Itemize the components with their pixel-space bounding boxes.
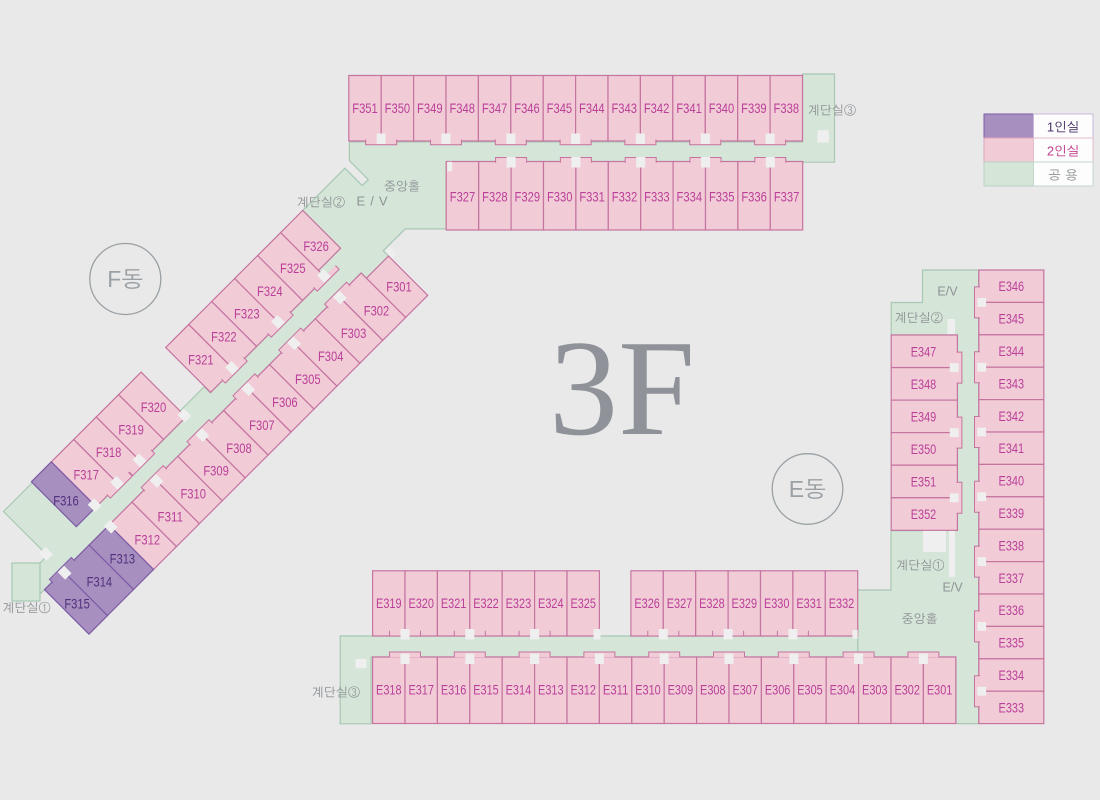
svg-text:E312: E312 xyxy=(570,682,596,698)
svg-text:E/V: E/V xyxy=(357,194,388,209)
svg-text:E306: E306 xyxy=(765,682,791,698)
svg-text:F345: F345 xyxy=(547,100,573,116)
svg-text:F316: F316 xyxy=(53,493,79,509)
svg-text:F330: F330 xyxy=(547,189,573,205)
svg-text:F337: F337 xyxy=(774,189,800,205)
svg-text:E320: E320 xyxy=(408,595,434,611)
svg-text:E352: E352 xyxy=(911,506,937,522)
svg-text:E344: E344 xyxy=(999,343,1025,359)
svg-text:F347: F347 xyxy=(482,100,508,116)
svg-text:F333: F333 xyxy=(644,189,670,205)
svg-text:F346: F346 xyxy=(514,100,540,116)
svg-text:F328: F328 xyxy=(482,189,508,205)
svg-text:E351: E351 xyxy=(911,474,937,490)
svg-text:E324: E324 xyxy=(538,595,564,611)
svg-text:F343: F343 xyxy=(611,100,637,116)
svg-text:F331: F331 xyxy=(579,189,605,205)
svg-text:E336: E336 xyxy=(999,602,1025,618)
svg-text:E345: E345 xyxy=(999,311,1025,327)
svg-text:E303: E303 xyxy=(862,682,888,698)
svg-text:F308: F308 xyxy=(226,440,252,456)
svg-text:E316: E316 xyxy=(441,682,467,698)
svg-text:E314: E314 xyxy=(506,682,532,698)
svg-text:E343: E343 xyxy=(999,375,1025,391)
svg-text:E317: E317 xyxy=(408,682,434,698)
svg-text:F332: F332 xyxy=(612,189,638,205)
svg-text:E315: E315 xyxy=(473,682,499,698)
svg-text:E330: E330 xyxy=(764,595,790,611)
svg-text:E319: E319 xyxy=(376,595,402,611)
svg-text:E347: E347 xyxy=(911,343,937,359)
svg-text:E338: E338 xyxy=(999,537,1025,553)
svg-text:E307: E307 xyxy=(732,682,758,698)
svg-text:E325: E325 xyxy=(570,595,596,611)
svg-text:E350: E350 xyxy=(911,441,937,457)
svg-text:E: E xyxy=(789,476,804,502)
svg-text:F351: F351 xyxy=(352,100,378,116)
svg-text:E301: E301 xyxy=(927,682,953,698)
svg-text:F310: F310 xyxy=(180,486,206,502)
svg-text:F312: F312 xyxy=(135,531,161,547)
svg-text:F305: F305 xyxy=(295,371,321,387)
svg-text:E341: E341 xyxy=(999,440,1025,456)
svg-text:E308: E308 xyxy=(700,682,726,698)
svg-text:F314: F314 xyxy=(87,573,113,589)
svg-text:E311: E311 xyxy=(603,682,629,698)
svg-text:E348: E348 xyxy=(911,376,937,392)
svg-text:E332: E332 xyxy=(829,595,855,611)
svg-text:F329: F329 xyxy=(515,189,541,205)
svg-text:F340: F340 xyxy=(709,100,735,116)
svg-text:E302: E302 xyxy=(894,682,920,698)
svg-text:F321: F321 xyxy=(188,352,214,368)
svg-text:F315: F315 xyxy=(64,596,90,612)
svg-text:E305: E305 xyxy=(797,682,823,698)
svg-text:F311: F311 xyxy=(158,509,184,525)
svg-text:F326: F326 xyxy=(303,238,329,254)
svg-text:E322: E322 xyxy=(473,595,499,611)
svg-text:E331: E331 xyxy=(796,595,822,611)
svg-text:E310: E310 xyxy=(635,682,661,698)
svg-text:E349: E349 xyxy=(911,408,937,424)
svg-text:F306: F306 xyxy=(272,394,298,410)
svg-text:E329: E329 xyxy=(732,595,758,611)
svg-text:E340: E340 xyxy=(999,473,1025,489)
svg-text:F307: F307 xyxy=(249,417,275,433)
svg-text:F324: F324 xyxy=(257,283,283,299)
svg-text:F336: F336 xyxy=(741,189,767,205)
svg-text:F334: F334 xyxy=(677,189,703,205)
svg-text:E335: E335 xyxy=(999,635,1025,651)
svg-text:1: 1 xyxy=(1047,120,1054,135)
svg-text:F302: F302 xyxy=(364,302,390,318)
svg-text:F319: F319 xyxy=(118,422,144,438)
svg-text:F341: F341 xyxy=(676,100,702,116)
svg-text:F309: F309 xyxy=(203,463,229,479)
svg-text:E337: E337 xyxy=(999,570,1025,586)
svg-text:E313: E313 xyxy=(538,682,564,698)
svg-text:E/V: E/V xyxy=(937,285,958,299)
svg-text:E339: E339 xyxy=(999,505,1025,521)
svg-text:E327: E327 xyxy=(667,595,693,611)
svg-text:F344: F344 xyxy=(579,100,605,116)
svg-text:E342: E342 xyxy=(999,408,1025,424)
svg-text:E323: E323 xyxy=(506,595,532,611)
svg-text:F318: F318 xyxy=(96,444,122,460)
svg-text:F322: F322 xyxy=(211,329,237,345)
svg-text:F348: F348 xyxy=(449,100,475,116)
svg-text:F: F xyxy=(107,266,121,292)
svg-text:F350: F350 xyxy=(385,100,411,116)
svg-text:F342: F342 xyxy=(644,100,670,116)
svg-text:F327: F327 xyxy=(450,189,476,205)
svg-text:F303: F303 xyxy=(341,325,367,341)
svg-text:F339: F339 xyxy=(741,100,767,116)
svg-text:E333: E333 xyxy=(999,699,1025,715)
svg-text:F301: F301 xyxy=(386,279,412,295)
svg-text:E318: E318 xyxy=(376,682,402,698)
svg-text:F325: F325 xyxy=(280,260,306,276)
svg-text:F317: F317 xyxy=(73,466,99,482)
svg-text:F338: F338 xyxy=(774,100,800,116)
svg-text:E309: E309 xyxy=(668,682,694,698)
svg-text:E326: E326 xyxy=(634,595,660,611)
svg-text:2: 2 xyxy=(1047,144,1054,159)
svg-text:F349: F349 xyxy=(417,100,443,116)
svg-text:3F: 3F xyxy=(549,312,695,464)
svg-text:F313: F313 xyxy=(110,550,136,566)
svg-text:F335: F335 xyxy=(709,189,735,205)
svg-text:E346: E346 xyxy=(999,278,1025,294)
svg-text:F304: F304 xyxy=(318,348,344,364)
svg-text:E328: E328 xyxy=(699,595,725,611)
svg-text:E/V: E/V xyxy=(943,581,964,595)
svg-text:E321: E321 xyxy=(441,595,467,611)
svg-text:E304: E304 xyxy=(830,682,856,698)
svg-text:F320: F320 xyxy=(141,399,167,415)
svg-text:F323: F323 xyxy=(234,306,260,322)
svg-text:E334: E334 xyxy=(999,667,1025,683)
